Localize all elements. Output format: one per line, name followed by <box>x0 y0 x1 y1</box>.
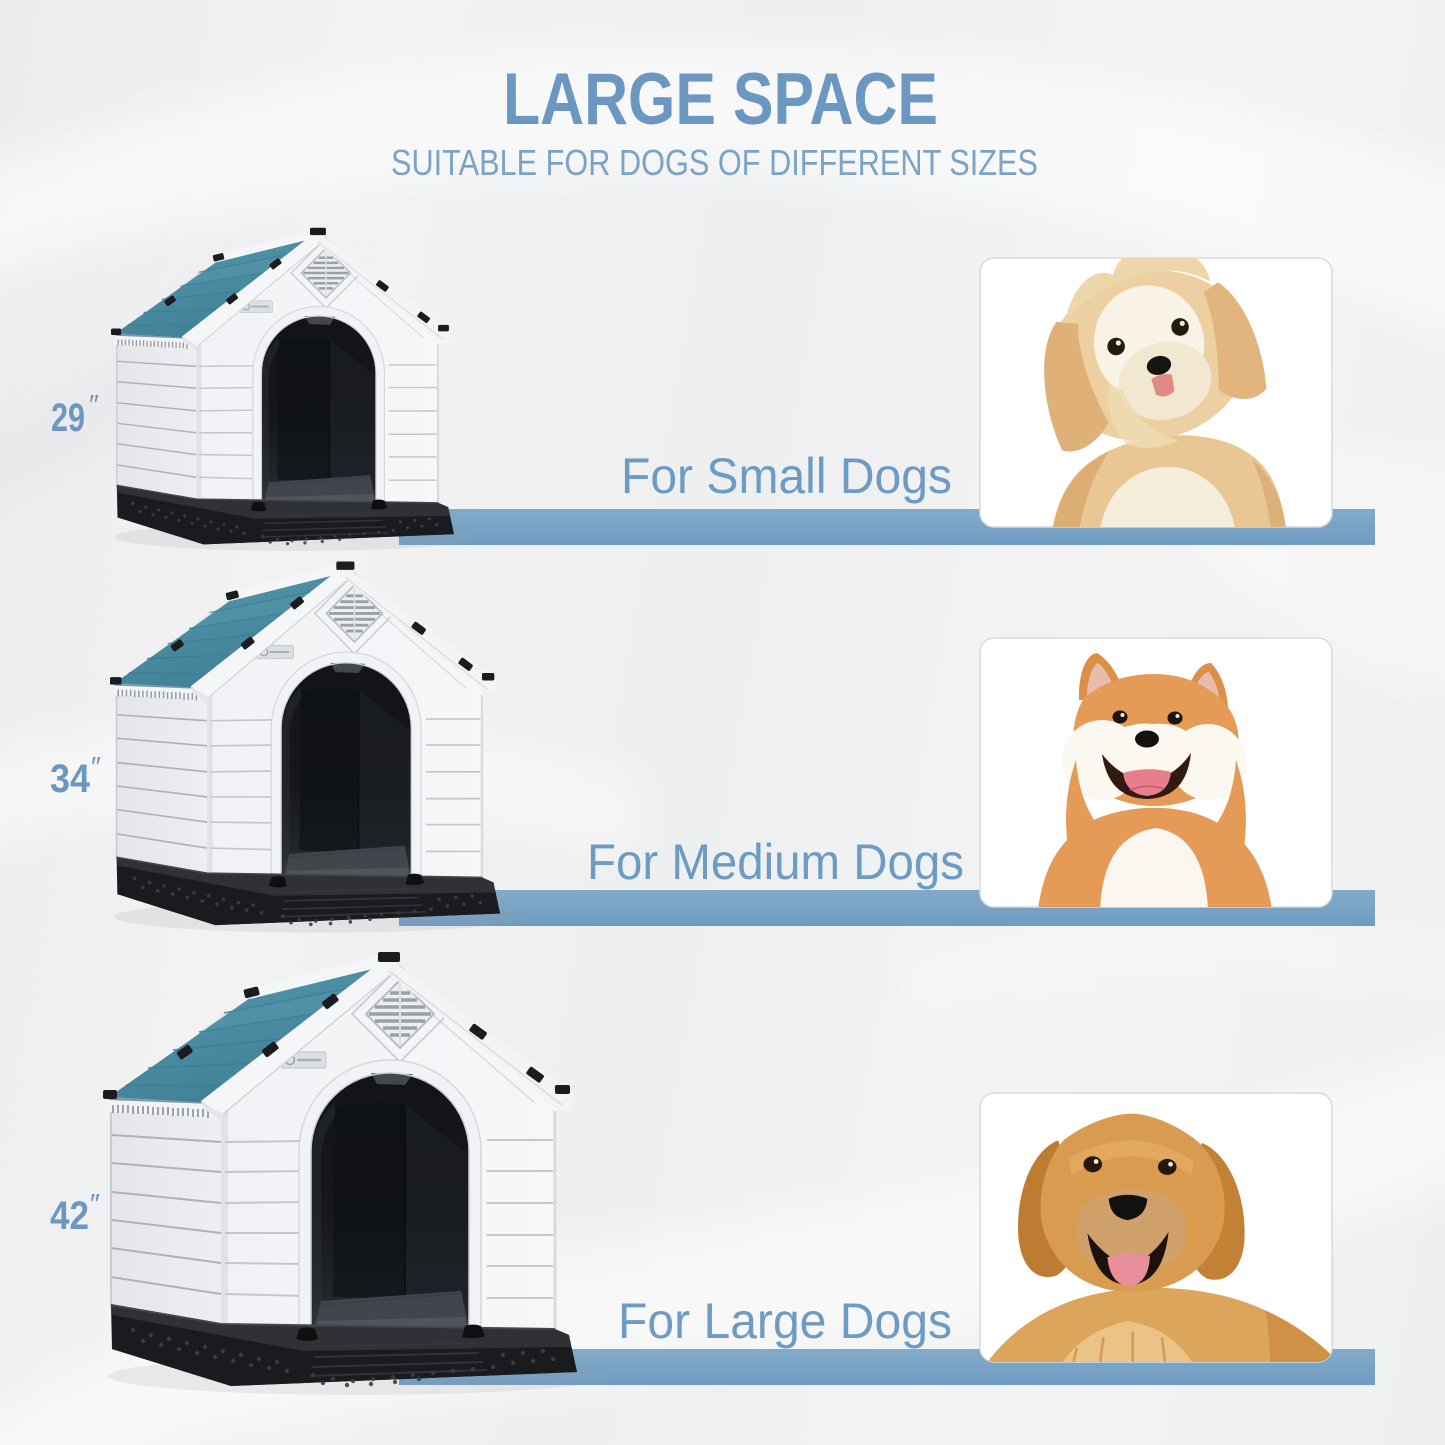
svg-text:For Large Dogs: For Large Dogs <box>618 1293 952 1349</box>
svg-text:″: ″ <box>89 389 99 420</box>
svg-text:34: 34 <box>50 757 91 801</box>
svg-text:29: 29 <box>51 396 85 440</box>
svg-text:42: 42 <box>50 1194 89 1238</box>
svg-text:LARGE SPACE: LARGE SPACE <box>503 59 938 140</box>
svg-text:For Small Dogs: For Small Dogs <box>621 448 952 504</box>
svg-text:For Medium Dogs: For Medium Dogs <box>587 834 964 890</box>
svg-text:″: ″ <box>91 751 101 782</box>
svg-text:SUITABLE FOR DOGS OF DIFFERENT: SUITABLE FOR DOGS OF DIFFERENT SIZES <box>391 142 1038 183</box>
svg-text:″: ″ <box>90 1188 100 1219</box>
